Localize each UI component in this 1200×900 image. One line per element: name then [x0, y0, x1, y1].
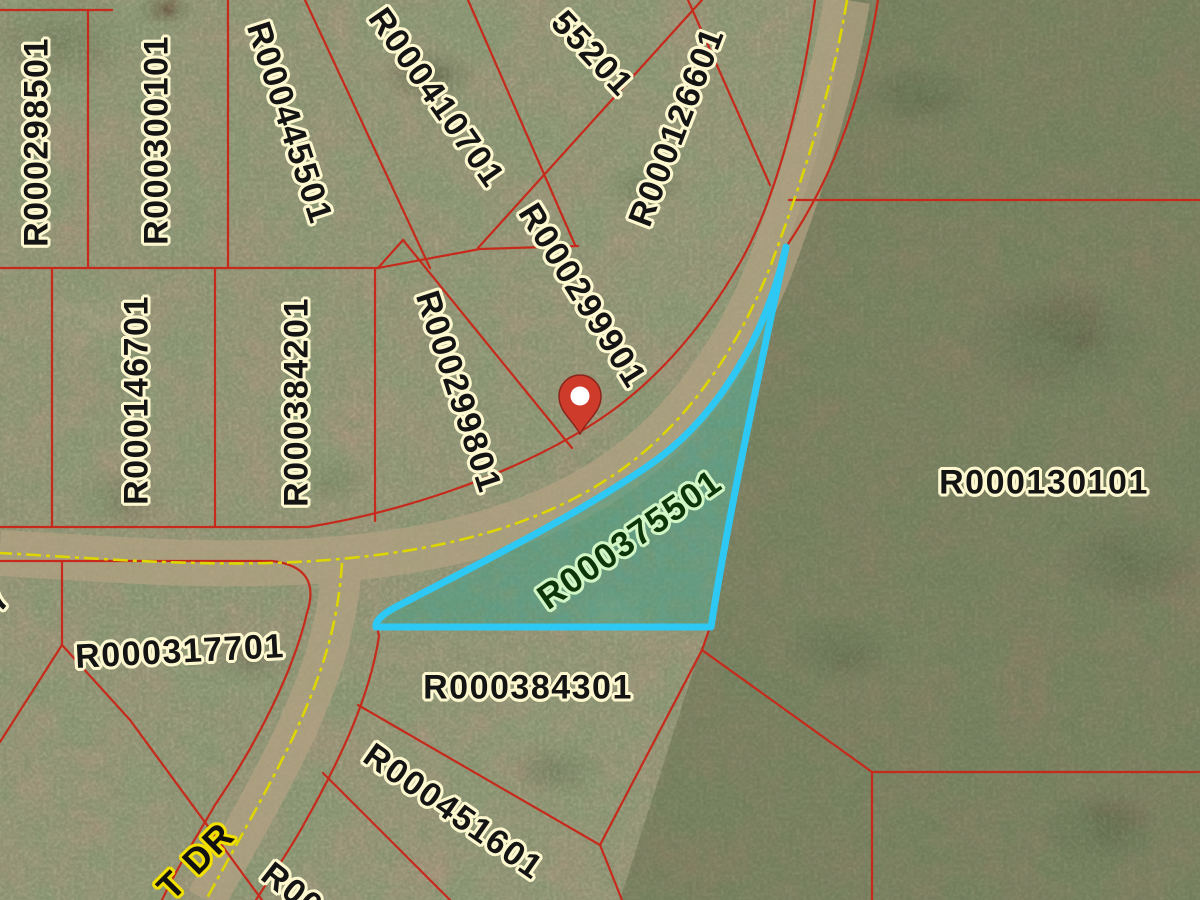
map-overlay: [0, 0, 1200, 900]
parcel-label-R000384301: R000384301: [423, 669, 633, 708]
parcel-label-R000298501: R000298501: [18, 37, 57, 247]
parcel-label-R000384201: R000384201: [278, 297, 317, 507]
parcel-label-R000130101: R000130101: [939, 464, 1149, 503]
aerial-imagery-texture: [0, 0, 1200, 900]
parcel-label-R000146701: R000146701: [118, 295, 157, 505]
parcel-label-R000300101: R000300101: [138, 35, 177, 245]
map-canvas[interactable]: R000298501R000300101R000445501R000410701…: [0, 0, 1200, 900]
